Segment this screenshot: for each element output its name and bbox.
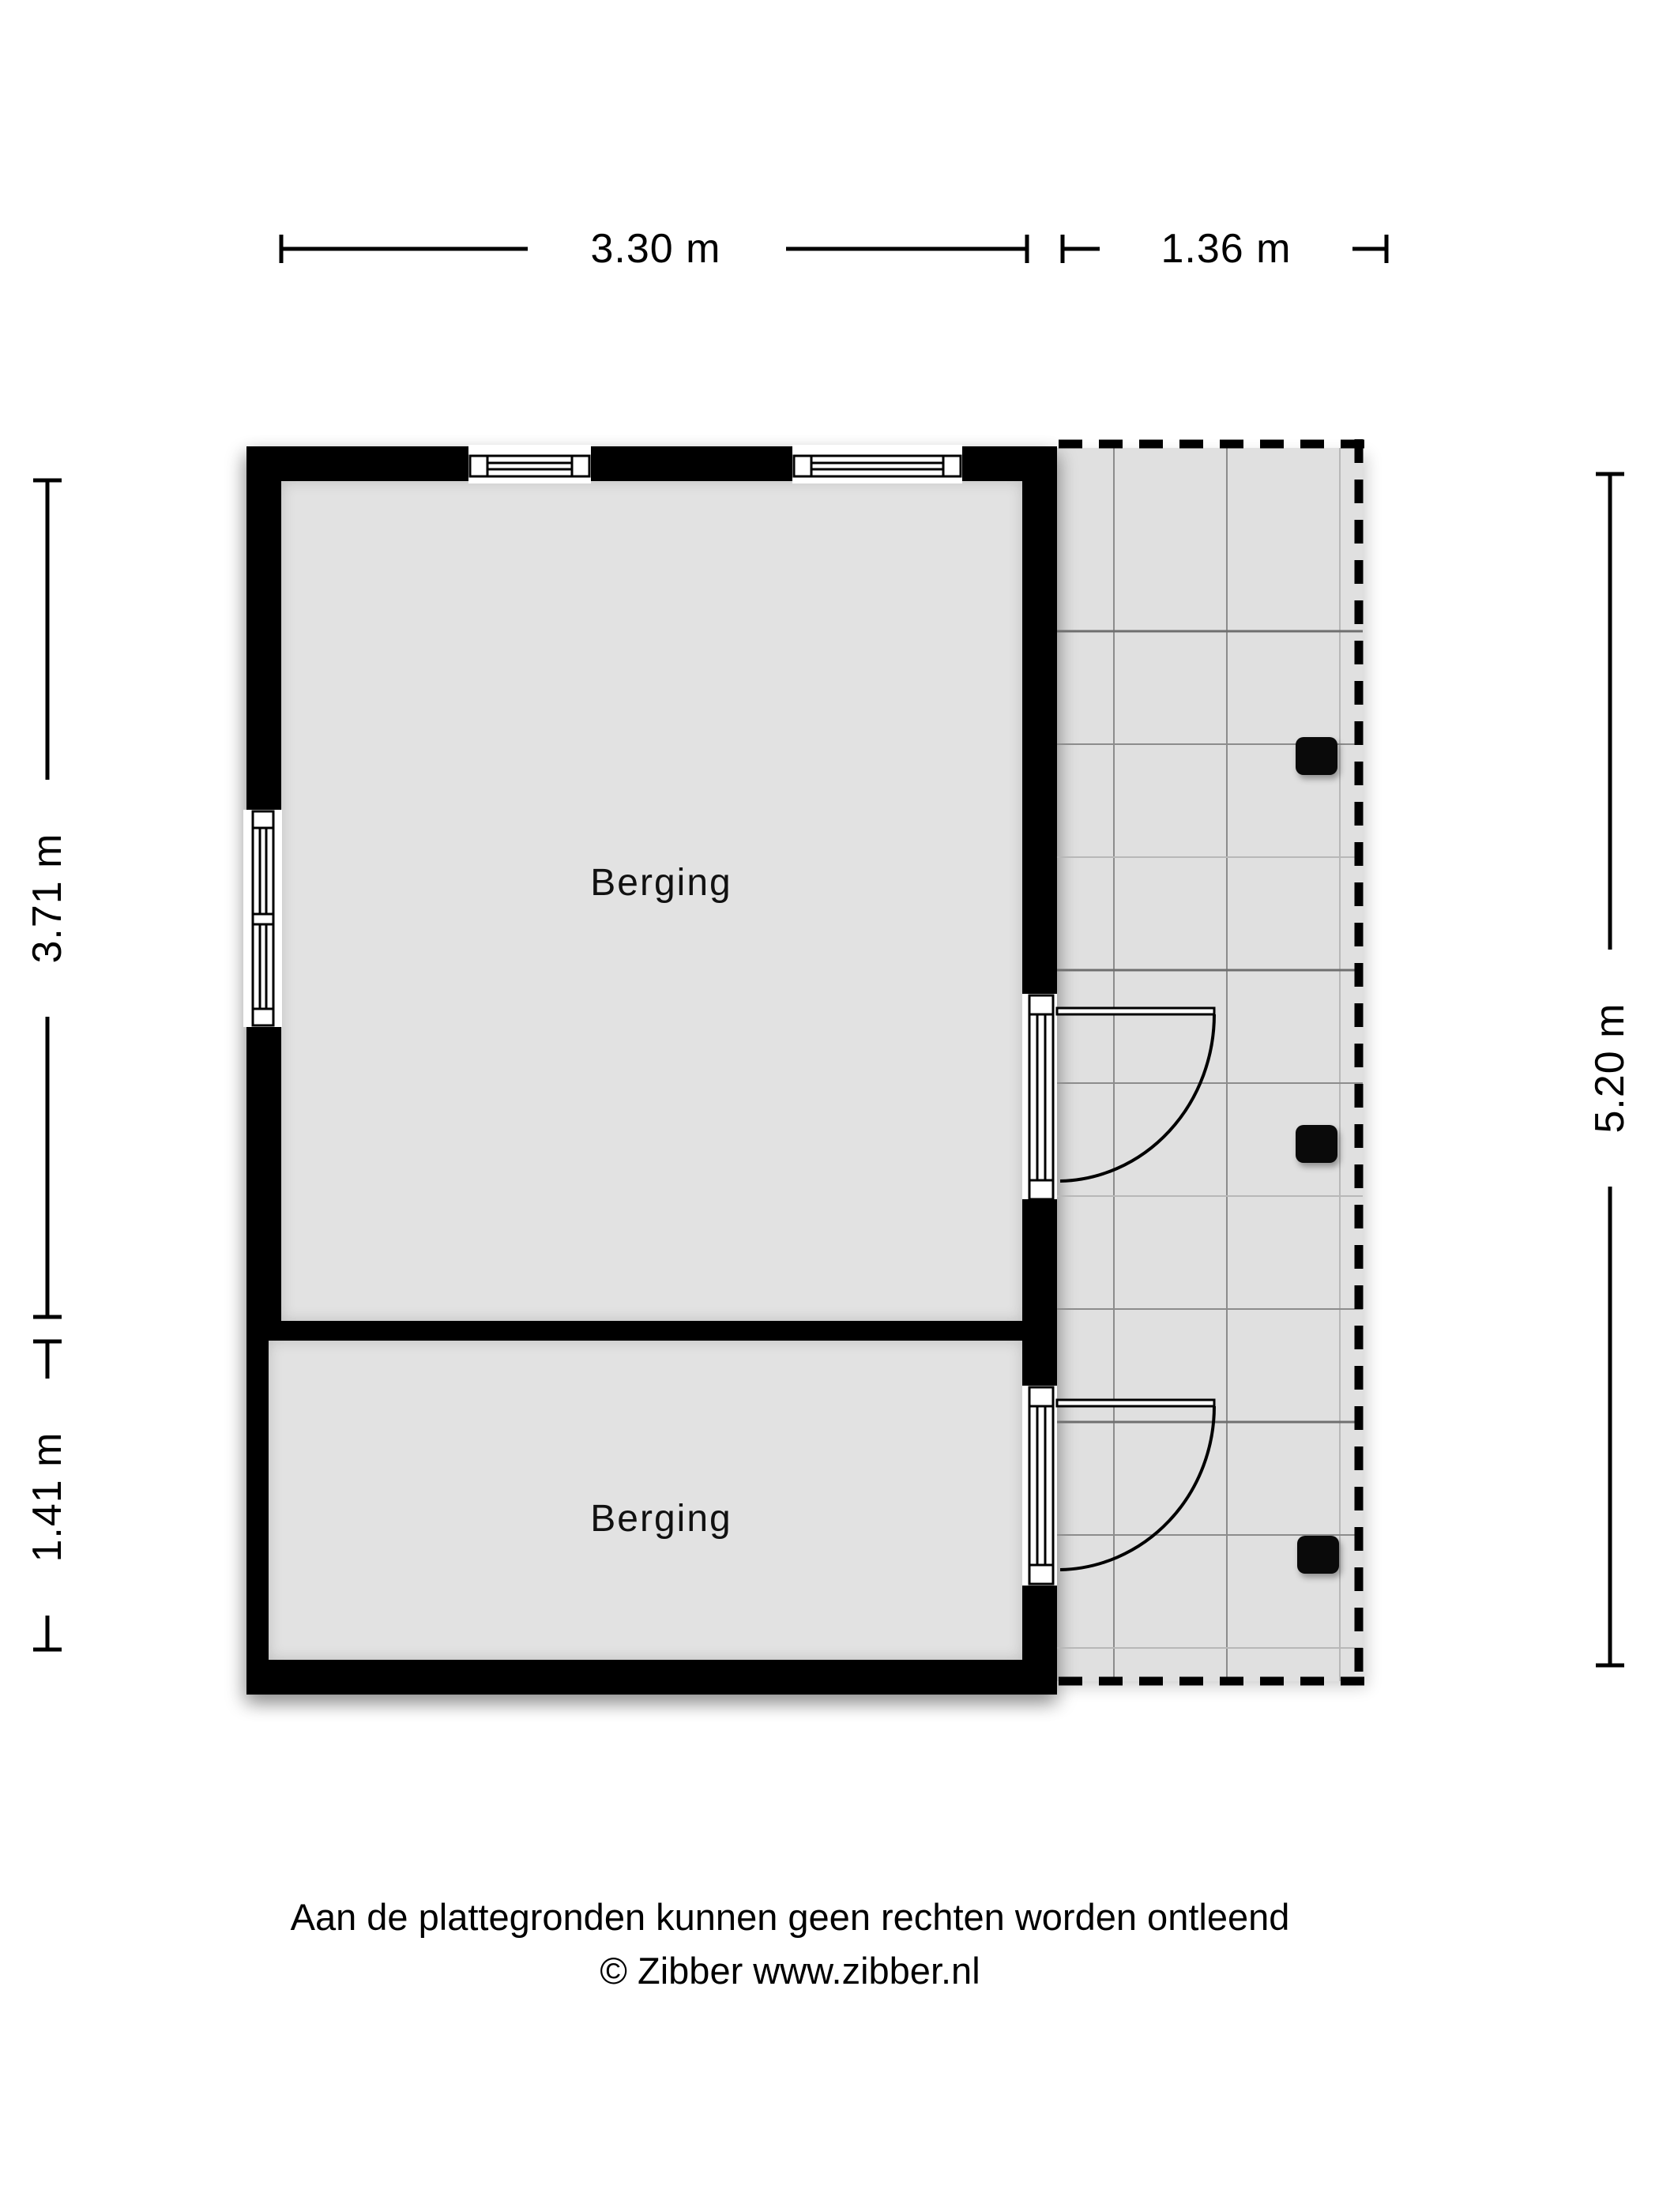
window-top-1-glazing	[470, 456, 589, 476]
credit-text: © Zibber www.zibber.nl	[79, 1947, 1501, 1996]
dimension-label-left-lower: 1.41 m	[24, 1379, 71, 1616]
door-2-swing-arc	[1060, 1406, 1214, 1570]
window-top-2-glazing	[794, 456, 961, 476]
dimension-label-right-total: 5.20 m	[1586, 950, 1634, 1187]
room-label-berging-2: Berging	[503, 1495, 819, 1543]
linework-overlay	[0, 0, 1659, 2212]
window-left-glazing	[253, 811, 273, 1025]
patio-post-3	[1297, 1536, 1339, 1574]
door-1	[1029, 995, 1214, 1199]
dimension-label-top-patio: 1.36 m	[1108, 225, 1345, 273]
door-2-leaf	[1057, 1400, 1214, 1406]
patio-post-2	[1296, 1125, 1337, 1163]
disclaimer-text: Aan de plattegronden kunnen geen rechten…	[79, 1893, 1501, 1942]
patio-post-1	[1296, 737, 1337, 775]
door-1-leaf	[1057, 1008, 1214, 1014]
room-label-berging-1: Berging	[503, 860, 819, 907]
patio-boundary-dashed	[1059, 439, 1365, 1687]
dimension-label-top-main: 3.30 m	[537, 225, 774, 273]
door-1-swing-arc	[1060, 1014, 1214, 1181]
door-2	[1029, 1387, 1214, 1584]
dimension-label-left-upper: 3.71 m	[24, 780, 71, 1017]
patio-grid	[1057, 448, 1363, 1681]
floorplan-canvas: Berging Berging 3.30 m 1.36 m 3.71 m 1.4…	[0, 0, 1659, 2212]
